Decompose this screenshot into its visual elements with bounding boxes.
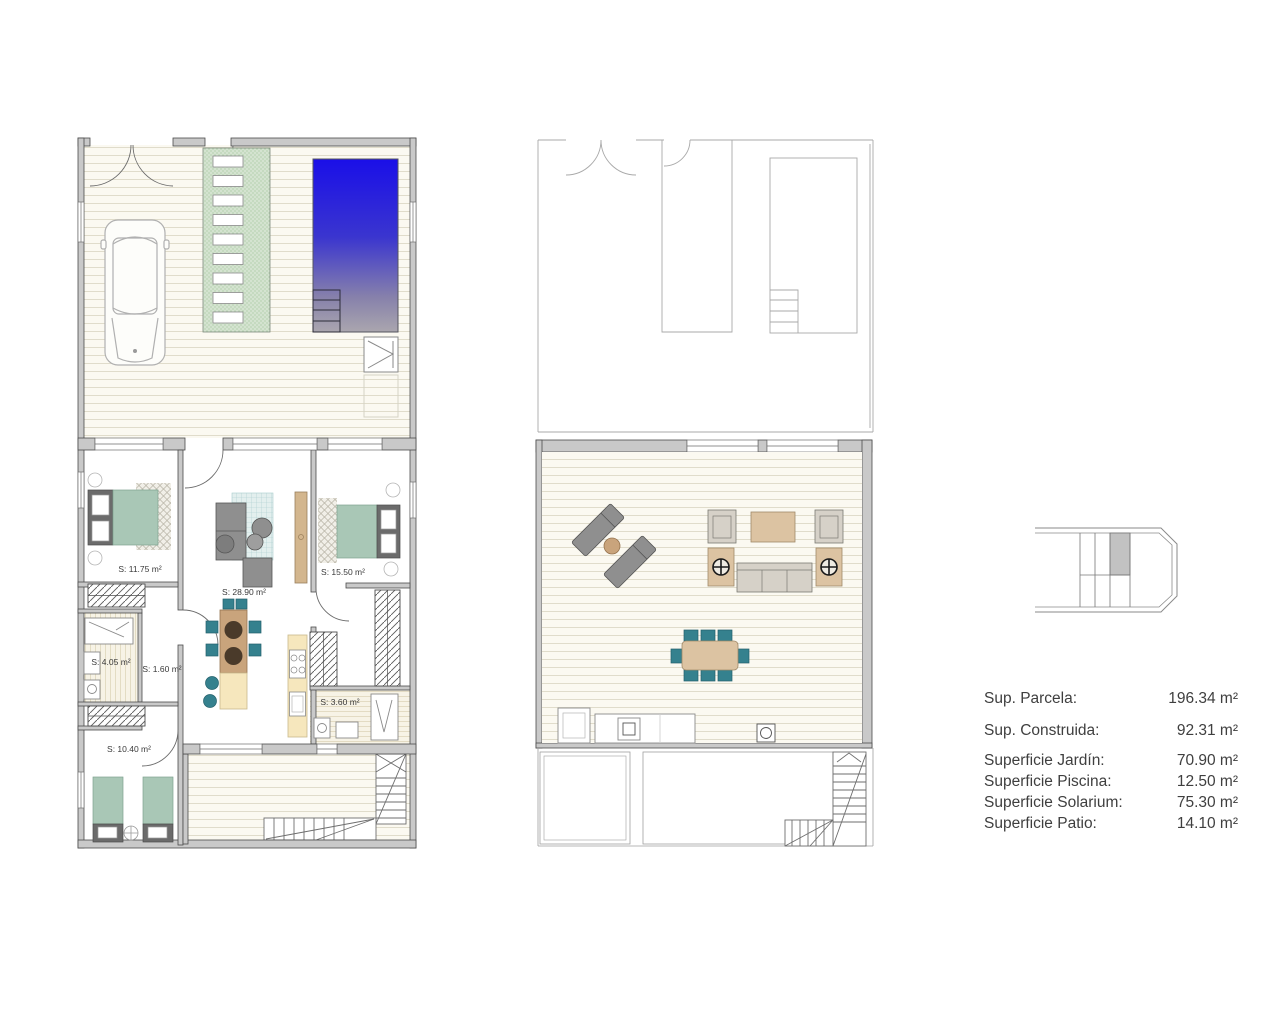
window xyxy=(317,744,337,754)
legend-label: Superficie Jardín: xyxy=(984,752,1105,769)
bed-mattress xyxy=(93,777,123,824)
tv-unit xyxy=(295,492,307,583)
legend-row-patio: Superficie Patio: 14.10 m² xyxy=(984,815,1238,832)
window xyxy=(410,202,416,242)
pillow xyxy=(92,495,109,515)
legend-label: Superficie Piscina: xyxy=(984,773,1112,790)
sink xyxy=(336,722,358,738)
chair xyxy=(684,630,698,641)
sink-unit xyxy=(757,724,775,742)
shower xyxy=(371,694,398,740)
chair xyxy=(718,630,732,641)
legend-value: 92.31 m² xyxy=(1177,722,1238,739)
toilet xyxy=(314,718,330,738)
toilet xyxy=(84,680,100,699)
pouf xyxy=(247,534,263,550)
legend-label: Superficie Solarium: xyxy=(984,794,1123,811)
room-label-bedroom-right: S: 15.50 m² xyxy=(321,567,365,577)
sofa xyxy=(737,563,812,592)
outdoor-shower-icon xyxy=(364,337,398,372)
swimming-pool xyxy=(313,159,398,332)
bowl xyxy=(225,647,243,665)
armchair xyxy=(243,558,272,587)
surface-legend: Sup. Parcela: 196.34 m² Sup. Construida:… xyxy=(984,690,1238,832)
window xyxy=(78,202,84,242)
window xyxy=(328,438,382,450)
pillow xyxy=(148,827,167,838)
wardrobe xyxy=(310,632,337,686)
bed-mattress xyxy=(337,505,377,558)
wardrobe xyxy=(88,706,145,726)
legend-value: 70.90 m² xyxy=(1177,752,1238,769)
bed-mattress xyxy=(143,777,173,824)
parasol-base-icon xyxy=(821,559,837,575)
wardrobe xyxy=(88,584,145,607)
bed-mattress xyxy=(113,490,158,545)
chair xyxy=(738,649,749,663)
block-outline-inner xyxy=(1035,533,1172,607)
chair xyxy=(236,599,247,609)
pillow xyxy=(381,534,396,553)
lower-level-outline-top xyxy=(538,140,873,432)
legend-row-jardin: Superficie Jardín: 70.90 m² xyxy=(984,752,1238,769)
window xyxy=(95,438,163,450)
legend-value: 14.10 m² xyxy=(1177,815,1238,832)
kitchen-counter xyxy=(288,635,307,737)
stove xyxy=(290,650,306,678)
chair xyxy=(701,630,715,641)
window xyxy=(410,482,416,518)
car-icon xyxy=(101,220,169,365)
coffee-table xyxy=(751,512,795,542)
solarium-deck xyxy=(542,452,862,743)
legend-value: 75.30 m² xyxy=(1177,794,1238,811)
room-label-hall: S: 1.60 m² xyxy=(142,664,181,674)
bowl xyxy=(225,621,243,639)
legend-label: Sup. Parcela: xyxy=(984,690,1077,707)
legend-row-parcela: Sup. Parcela: 196.34 m² xyxy=(984,690,1238,707)
chair xyxy=(249,644,261,656)
bedroom-bottom xyxy=(93,777,173,842)
pool-outline xyxy=(770,158,857,333)
legend-row-piscina: Superficie Piscina: 12.50 m² xyxy=(984,773,1238,790)
stool xyxy=(204,695,217,708)
patio-area xyxy=(188,754,410,840)
wardrobe xyxy=(375,590,400,686)
legend-value: 196.34 m² xyxy=(1168,690,1238,707)
legend-value: 12.50 m² xyxy=(1177,773,1238,790)
ground-floor-plan: S: 11.75 m² S: 28.90 m² S: 15.50 m² S: 4… xyxy=(76,132,418,854)
room-label-bathroom-right: S: 3.60 m² xyxy=(320,697,359,707)
legend-row-solarium: Superficie Solarium: 75.30 m² xyxy=(984,794,1238,811)
chair xyxy=(206,621,218,633)
kitchen-island xyxy=(220,673,247,709)
chair xyxy=(206,644,218,656)
dining-table xyxy=(682,641,738,670)
legend-row-construida: Sup. Construida: 92.31 m² xyxy=(984,722,1238,739)
window xyxy=(767,440,838,452)
chair xyxy=(718,670,732,681)
fan-icon xyxy=(124,826,138,840)
legend-label: Superficie Patio: xyxy=(984,815,1097,832)
location-key-plan xyxy=(1035,520,1280,630)
pillow xyxy=(92,521,109,541)
room-label-bedroom-bottom: S: 10.40 m² xyxy=(107,744,151,754)
chair xyxy=(701,670,715,681)
room-label-bathroom-left: S: 4.05 m² xyxy=(91,657,130,667)
chair xyxy=(684,670,698,681)
window xyxy=(78,772,84,808)
solarium-floor-plan xyxy=(530,132,880,862)
window xyxy=(233,438,317,450)
sheet: S: 11.75 m² S: 28.90 m² S: 15.50 m² S: 4… xyxy=(0,0,1280,1024)
stool xyxy=(206,677,219,690)
garden-driveway-area xyxy=(84,145,410,438)
block-outline xyxy=(1035,528,1177,612)
pillow xyxy=(98,827,117,838)
rug xyxy=(318,498,337,563)
chair xyxy=(671,649,682,663)
window xyxy=(200,744,262,754)
window xyxy=(78,472,84,508)
legend-label: Sup. Construida: xyxy=(984,722,1099,739)
room-label-bedroom-left: S: 11.75 m² xyxy=(118,564,161,574)
chair xyxy=(223,599,234,609)
chair xyxy=(249,621,261,633)
stairs xyxy=(785,752,866,846)
garden-path xyxy=(203,148,270,332)
window xyxy=(687,440,758,452)
pouf xyxy=(216,535,234,553)
pillow xyxy=(381,510,396,529)
highlighted-unit xyxy=(1110,533,1130,575)
room-label-living: S: 28.90 m² xyxy=(222,587,266,597)
path-outline xyxy=(662,140,732,332)
pool-steps-outline xyxy=(770,290,798,333)
side-table xyxy=(604,538,620,554)
parasol-base-icon xyxy=(713,559,729,575)
